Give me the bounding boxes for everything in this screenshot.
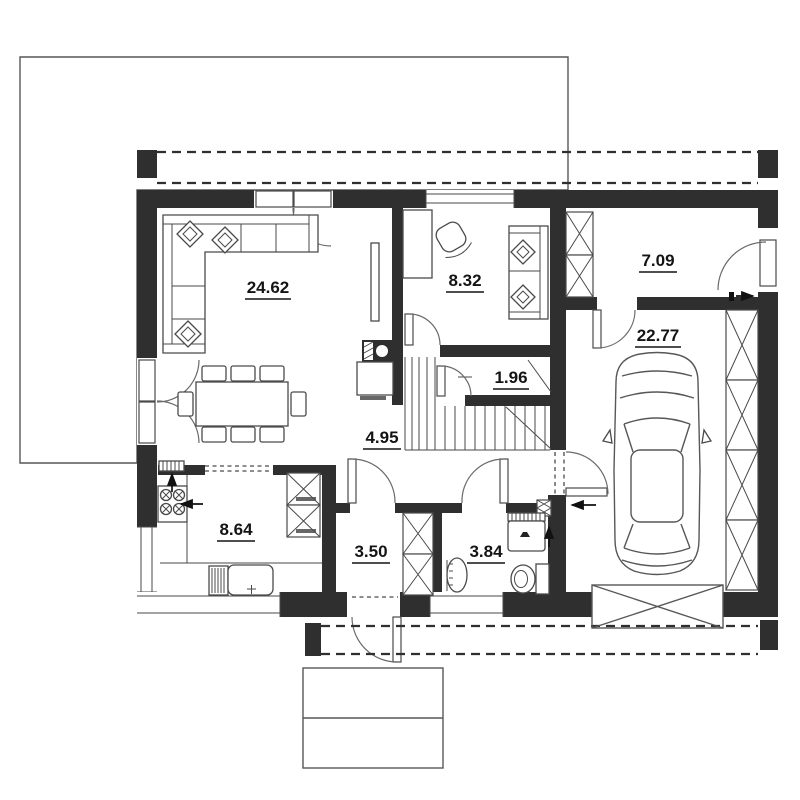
office-furniture: [403, 210, 548, 319]
desk-chair: [432, 218, 474, 261]
pier-top-left: [137, 150, 157, 178]
label-office: 8.32: [448, 271, 481, 290]
washing-machine: [508, 513, 545, 551]
porch-dashes: [321, 626, 758, 654]
radiator: [159, 461, 184, 471]
pier-porch-right: [760, 620, 778, 650]
pier-top-right: [758, 150, 778, 178]
left-window: [137, 527, 157, 592]
sink: [209, 565, 273, 595]
desk: [403, 210, 432, 278]
understair-door: [437, 366, 471, 396]
office-door: [405, 314, 440, 345]
kitchen-tall-units: [287, 473, 320, 537]
utility-duct-column: [403, 513, 433, 595]
corner-sofa: [163, 215, 318, 353]
label-hall: 4.95: [365, 428, 398, 447]
office-window: [426, 190, 514, 208]
car: [603, 353, 711, 575]
label-bathroom: 3.84: [469, 542, 503, 561]
office-sofa: [509, 226, 548, 319]
utility-door: [348, 459, 395, 503]
washbasin: [447, 558, 467, 592]
back-door: [352, 597, 401, 662]
hall-garage-door: [555, 452, 608, 496]
label-kitchen: 8.64: [219, 520, 253, 539]
floor-plan-svg: 24.62 8.32 7.09 22.77 1.96 4.95 8.64 3.5…: [0, 0, 800, 800]
vestibule-duct-block: [566, 212, 593, 297]
garage-wall-strip: [726, 310, 758, 590]
garage-content: [572, 353, 711, 575]
vestibule-garage-door: [593, 310, 635, 348]
label-utility: 3.50: [354, 542, 387, 561]
entry-steps: [303, 668, 443, 768]
label-garage: 22.77: [637, 326, 680, 345]
bathroom-window: [430, 592, 503, 617]
label-understair: 1.96: [494, 368, 527, 387]
wall-shelf: [371, 243, 379, 321]
bathroom-door: [462, 459, 508, 503]
garage-door: [592, 585, 723, 628]
label-vestibule: 7.09: [641, 251, 674, 270]
floor-plan-page: 24.62 8.32 7.09 22.77 1.96 4.95 8.64 3.5…: [0, 0, 800, 800]
upper-cabinet-dashes: [205, 466, 270, 471]
fireplace: [357, 340, 393, 400]
entrance-door: [718, 228, 778, 292]
kitchen-south-window: [137, 592, 280, 617]
label-living-room: 24.62: [247, 278, 290, 297]
toilet: [511, 564, 549, 594]
living-room-furniture: [163, 215, 393, 442]
pier-porch-left: [305, 623, 321, 656]
roof-overhang-dashes-top: [157, 152, 758, 183]
